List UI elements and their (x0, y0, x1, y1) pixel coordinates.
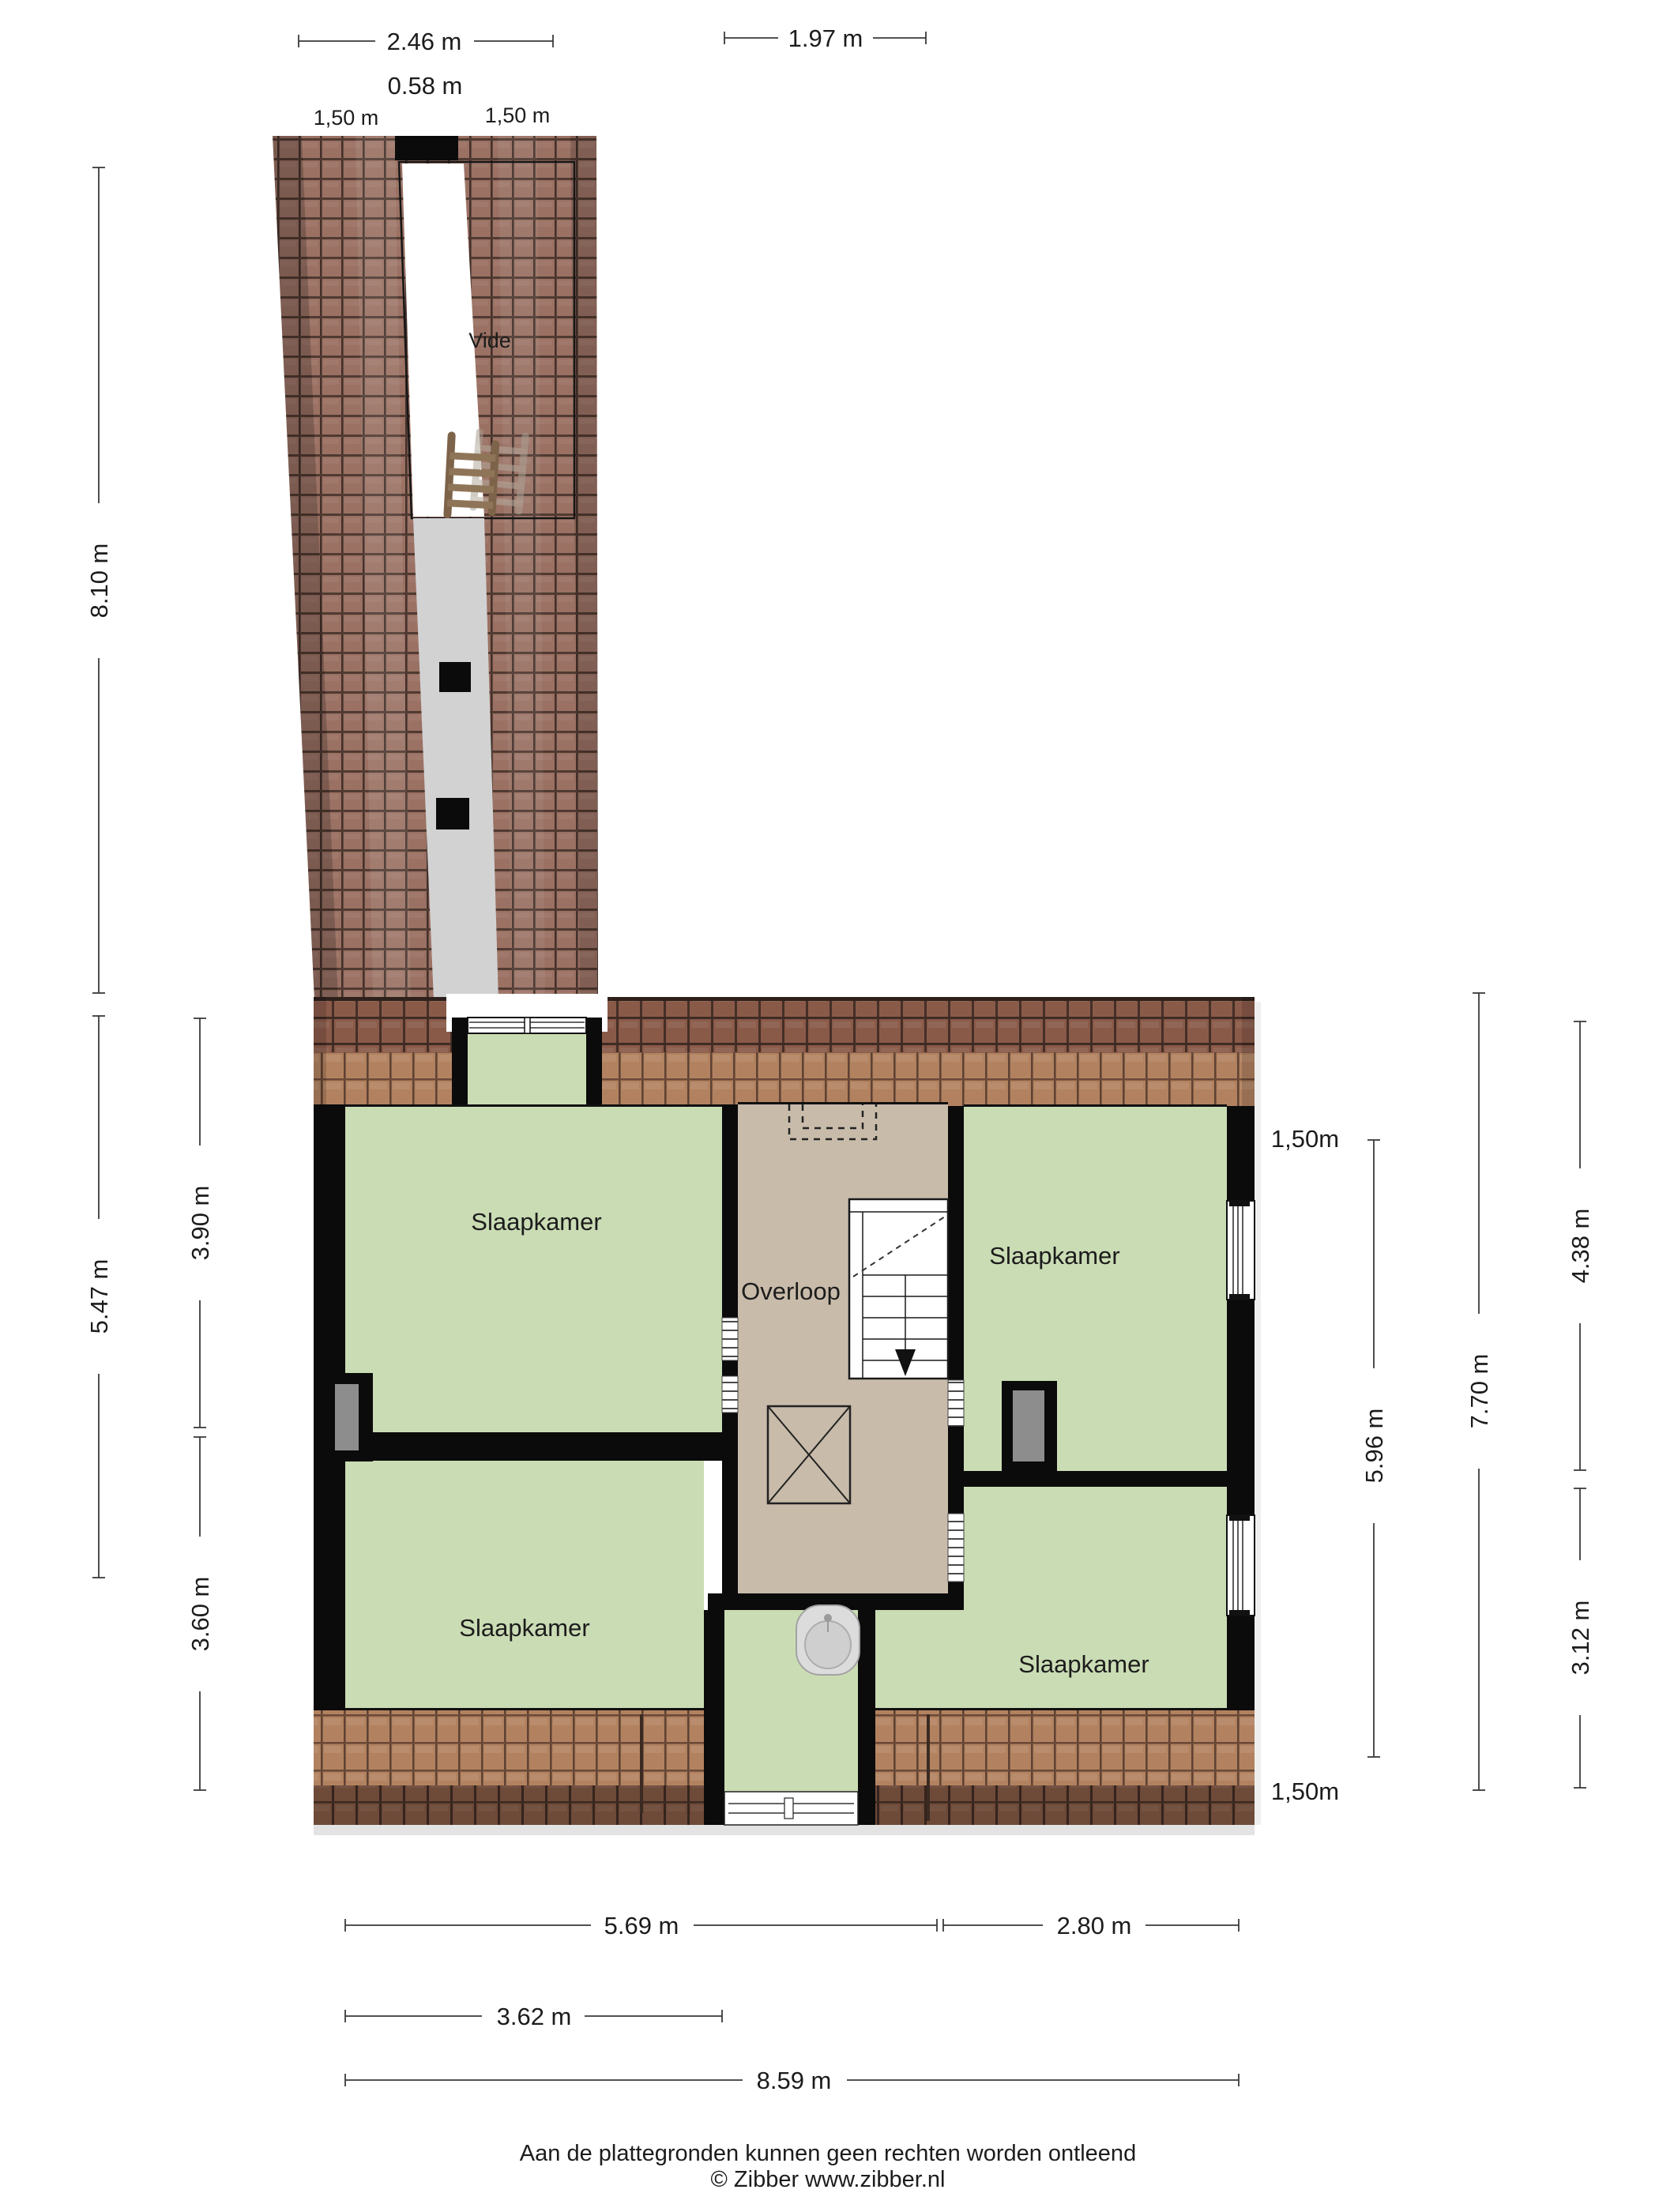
band-shade-r (1242, 997, 1255, 1106)
dim-label-197: 1.97 m (788, 24, 863, 52)
wall-overloop-west-2 (722, 1360, 738, 1376)
roof-tower: Vide (273, 136, 598, 1000)
main-building: Slaapkamer Slaapkamer Slaapkamer Slaapka… (314, 994, 1261, 1835)
room-label-vide: Vide (468, 329, 511, 352)
dim-label-438: 4.38 m (1567, 1209, 1594, 1284)
edge-line-3 (964, 1104, 1227, 1107)
edge-line-4 (345, 1708, 704, 1710)
staircase (849, 1199, 948, 1379)
room-label-bedroom-bottom-left: Slaapkamer (459, 1614, 589, 1642)
door-bedroom-bottom-right (948, 1514, 964, 1582)
sink-icon (796, 1605, 860, 1675)
dim-label-360: 3.60 m (186, 1577, 214, 1652)
corridor-wall-block-2 (436, 798, 469, 829)
edge-line-2 (738, 1102, 948, 1104)
window-bottom (724, 1792, 858, 1825)
footer: Aan de plattegronden kunnen geen rechten… (520, 2141, 1136, 2192)
wall-overloop-west-1 (722, 1104, 738, 1318)
room-label-bedroom-top-left: Slaapkamer (471, 1208, 601, 1236)
footer-disclaimer: Aan de plattegronden kunnen geen rechten… (520, 2141, 1136, 2166)
roof-hip-line-right (927, 1714, 930, 1821)
footer-credit: © Zibber www.zibber.nl (711, 2167, 946, 2192)
room-label-bedroom-bottom-right: Slaapkamer (1018, 1650, 1149, 1678)
dim-label-547: 5.47 m (85, 1259, 113, 1334)
dim-label-362: 3.62 m (497, 2003, 572, 2030)
wall-passage-east (858, 1610, 875, 1825)
room-label-overloop: Overloop (741, 1277, 841, 1305)
dim-label-859: 8.59 m (757, 2067, 832, 2094)
dim-label-596: 5.96 m (1360, 1409, 1388, 1484)
dormer-floor (468, 1032, 586, 1106)
wall-left-rooms-divider (345, 1432, 722, 1461)
wall-dormer-west (452, 1018, 468, 1104)
dim-label-150-right-bottom: 1,50m (1271, 1777, 1339, 1805)
floorplan-page: Vide (0, 0, 1659, 2212)
window-dormer (468, 1018, 586, 1033)
dim-label-150-top-left: 1,50 m (314, 106, 379, 130)
alcove-right (1002, 1381, 1057, 1471)
dim-label-280: 2.80 m (1057, 1912, 1132, 1939)
band-shade-l (314, 997, 326, 1106)
room-floor-bedroom-top-left (345, 1104, 722, 1432)
building-shadow-right (1255, 1002, 1261, 1825)
dim-label-569: 5.69 m (604, 1912, 679, 1939)
dim-label-312: 3.12 m (1567, 1601, 1594, 1676)
roof-hip-line-left (640, 1714, 643, 1813)
wall-outer-right-3 (1227, 1616, 1255, 1710)
window-right-lower (1227, 1515, 1255, 1616)
door-bedroom-top-right (948, 1380, 964, 1426)
wall-overloop-east-1 (948, 1106, 964, 1380)
wall-passage-west (704, 1610, 724, 1825)
wall-outer-right-1 (1227, 1106, 1255, 1201)
dim-label-150-right-top: 1,50m (1271, 1125, 1339, 1153)
tower-top-wall (395, 136, 458, 160)
edge-line-1 (345, 1104, 722, 1107)
dim-label-810: 8.10 m (85, 544, 113, 619)
niche-left (324, 1373, 373, 1461)
room-label-bedroom-top-right: Slaapkamer (989, 1242, 1119, 1270)
dim-label-770: 7.70 m (1465, 1354, 1493, 1429)
floorplan-canvas: Vide (0, 0, 1659, 2212)
wall-overloop-west-3 (722, 1413, 738, 1593)
wall-right-rooms-divider (964, 1471, 1227, 1487)
dim-label-246: 2.46 m (387, 28, 462, 55)
corridor-wall-block-1 (439, 662, 471, 692)
wall-dormer-east (586, 1018, 602, 1104)
building-shadow (314, 1825, 1255, 1835)
dim-label-390: 3.90 m (186, 1186, 214, 1261)
edge-line-5 (875, 1708, 1227, 1710)
dim-label-058: 0.58 m (388, 72, 463, 100)
wall-outer-right-2 (1227, 1300, 1255, 1515)
door-bedroom-bottom-left (722, 1376, 738, 1413)
door-bedroom-top-left (722, 1318, 738, 1360)
room-floor-bedroom-bottom-left (345, 1461, 704, 1710)
window-right-upper (1227, 1201, 1255, 1300)
dim-label-150-top-right: 1,50 m (485, 103, 551, 127)
wall-overloop-east-2 (948, 1426, 964, 1514)
